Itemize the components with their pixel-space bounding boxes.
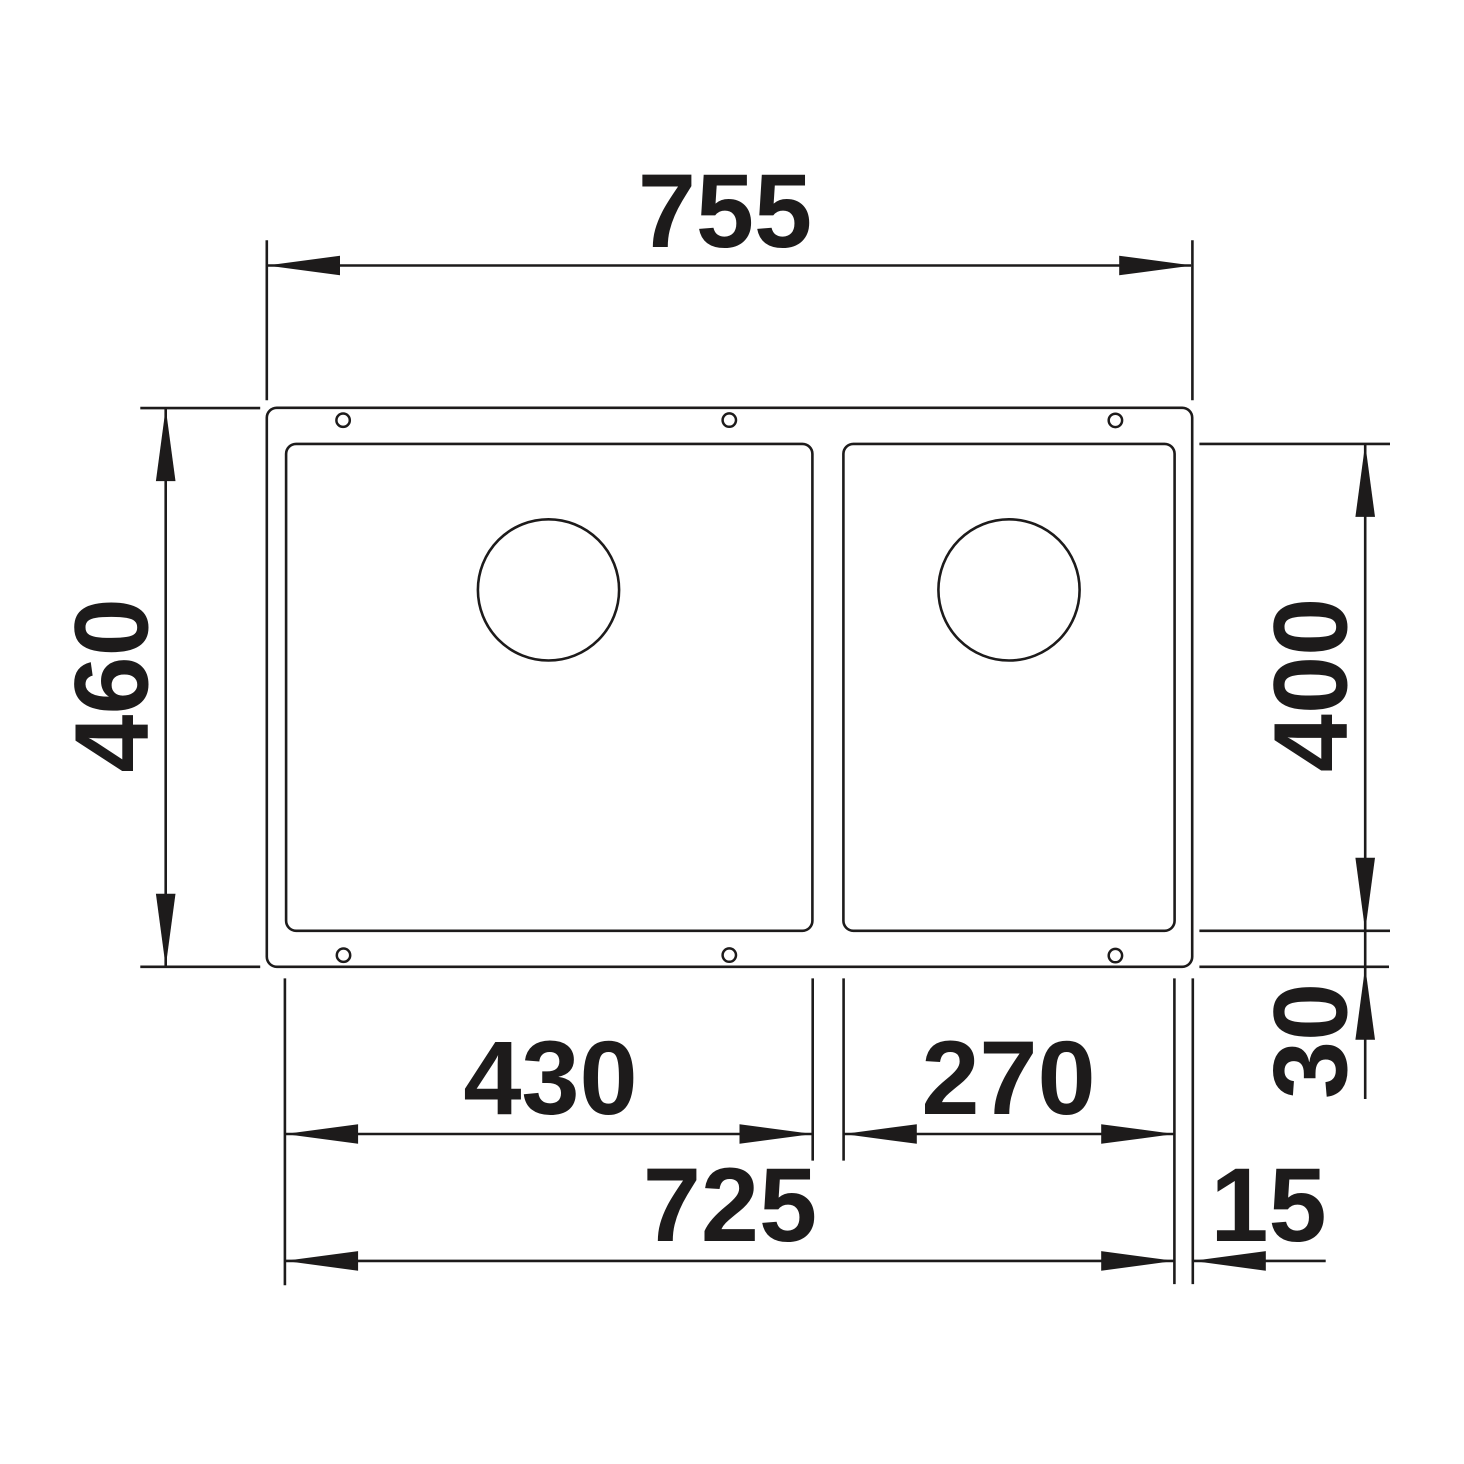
- svg-text:725: 725: [643, 1147, 817, 1264]
- svg-text:460: 460: [54, 598, 171, 772]
- svg-text:430: 430: [463, 1020, 637, 1137]
- svg-text:755: 755: [638, 153, 812, 270]
- svg-text:400: 400: [1253, 598, 1370, 772]
- svg-text:270: 270: [921, 1020, 1095, 1137]
- svg-text:15: 15: [1210, 1147, 1326, 1264]
- svg-text:30: 30: [1253, 983, 1370, 1099]
